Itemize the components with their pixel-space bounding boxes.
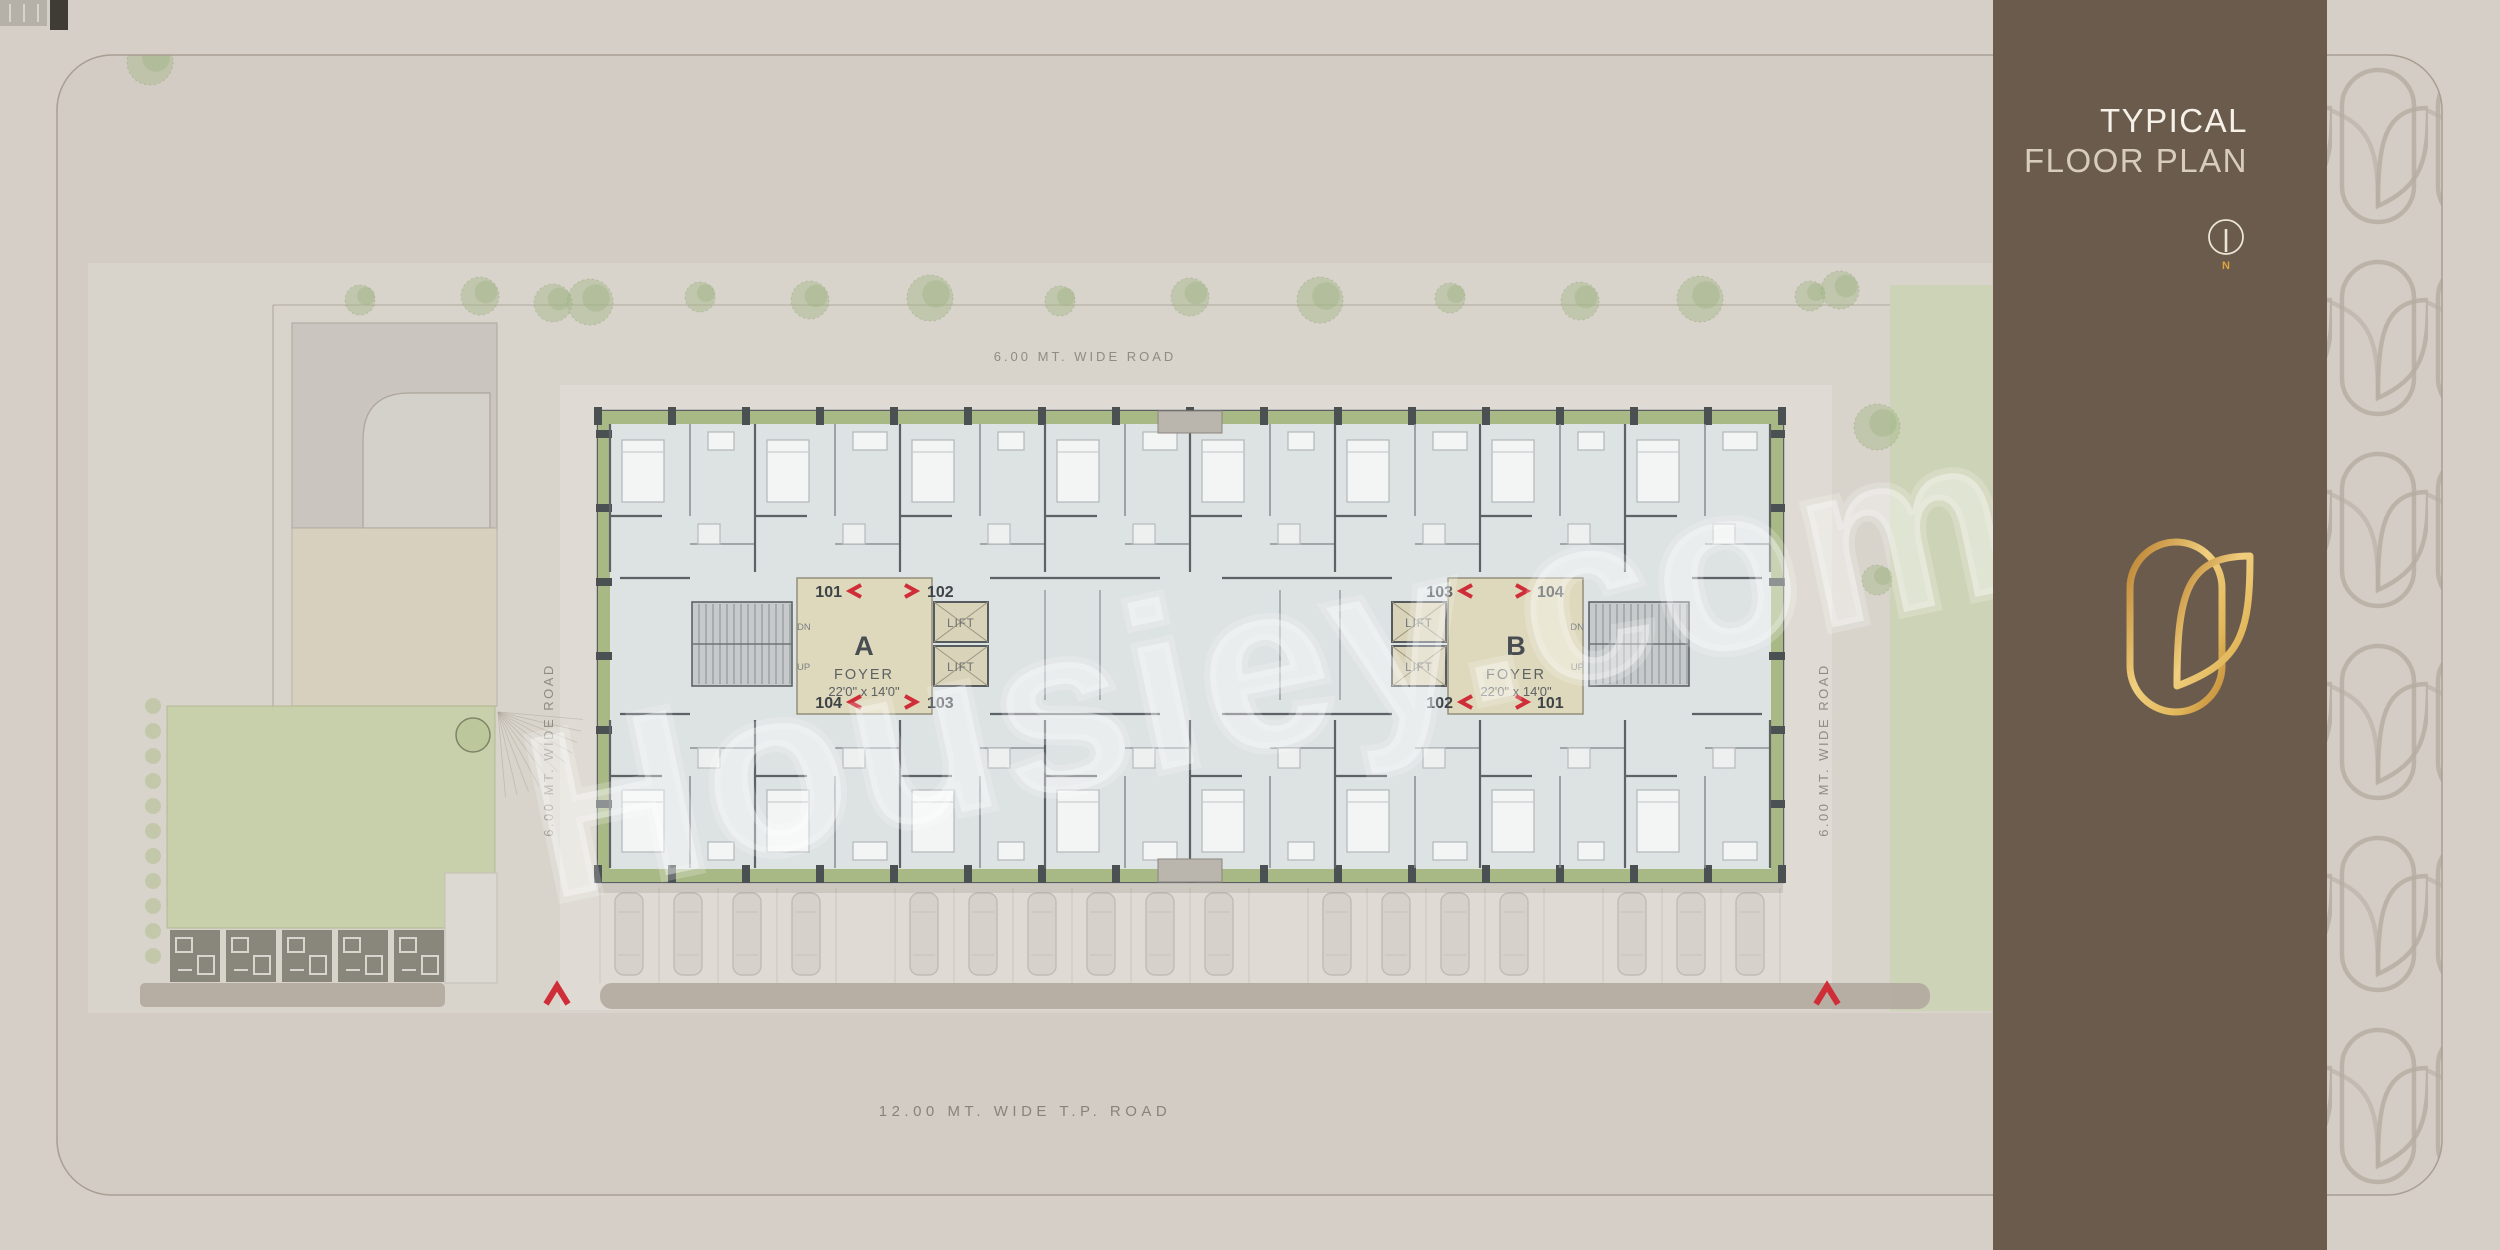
wardrobe [1433,842,1467,860]
neighbour-plot [292,323,497,706]
wardrobe [708,432,734,450]
typical-floor-plan-page: LIFT LIFT DN UP A FOYER 22'0" x 14'0" 10… [0,0,2500,1250]
parked-car [1323,893,1351,975]
road-strip-west [140,983,445,1007]
parked-car [1205,893,1233,975]
covered-stall [394,930,444,982]
parked-car [1382,893,1410,975]
bed [622,440,664,502]
sidebar: TYPICAL FLOOR PLAN N [1993,0,2327,1250]
unit-a-101: 101 [815,584,842,601]
bed [1202,440,1244,502]
parked-car [1500,893,1528,975]
wardrobe [1723,842,1757,860]
site-plan-canvas: LIFT LIFT DN UP A FOYER 22'0" x 14'0" 10… [0,0,2500,1250]
bed [1057,440,1099,502]
road-label-north: 6.00 MT. WIDE ROAD [994,349,1177,364]
wardrobe [1288,432,1314,450]
garden-tree [456,718,490,752]
bath-fixture [698,524,720,544]
tree [345,285,375,315]
bed [1347,440,1389,502]
parked-car [792,893,820,975]
road-label-south: 12.00 MT. WIDE T.P. ROAD [879,1103,1172,1120]
wardrobe [1143,842,1177,860]
tree [1677,276,1723,322]
parked-car [1677,893,1705,975]
parked-car [1028,893,1056,975]
tree [534,284,572,322]
bath-fixture [988,524,1010,544]
bed [1492,790,1534,852]
sidebar-background [1993,0,2327,1250]
bed [1347,790,1389,852]
tree [907,275,953,321]
corner-fragment [0,0,68,30]
recess-north [1158,411,1222,433]
bath-fixture [1133,524,1155,544]
tree [1795,281,1825,311]
road-strip-main [600,983,1930,1009]
wardrobe [1143,432,1177,450]
bed [767,440,809,502]
tree [567,279,613,325]
parked-car [1087,893,1115,975]
tree [1171,278,1209,316]
wardrobe [1578,842,1604,860]
page-title-line2: FLOOR PLAN [2024,142,2248,179]
garden-paving [445,873,497,983]
parked-car [910,893,938,975]
brand-pattern-strip [2327,55,2442,1195]
covered-stall [338,930,388,982]
parked-car [1618,893,1646,975]
wardrobe [998,432,1024,450]
wardrobe [853,432,887,450]
parked-car [1736,893,1764,975]
tree [1821,271,1859,309]
covered-stall [226,930,276,982]
tree [1297,277,1343,323]
north-label: N [2222,260,2230,272]
parked-car [1146,893,1174,975]
tree [1561,282,1599,320]
tree [685,282,715,312]
parked-car [1441,893,1469,975]
bed [1637,790,1679,852]
wardrobe [1288,842,1314,860]
bath-fixture [1713,748,1735,768]
road-label-east: 6.00 MT. WIDE ROAD [1816,663,1831,837]
recess-south [1158,859,1222,882]
covered-parking-stalls [170,930,444,982]
bath-fixture [1568,748,1590,768]
bath-fixture [843,524,865,544]
tree [791,281,829,319]
wardrobe [1433,432,1467,450]
bed [912,440,954,502]
parked-car [969,893,997,975]
tree [1045,286,1075,316]
wardrobe [1578,432,1604,450]
covered-stall [282,930,332,982]
tree [461,277,499,315]
page-title-line1: TYPICAL [2100,102,2248,139]
covered-stall [170,930,220,982]
tree [1435,283,1465,313]
